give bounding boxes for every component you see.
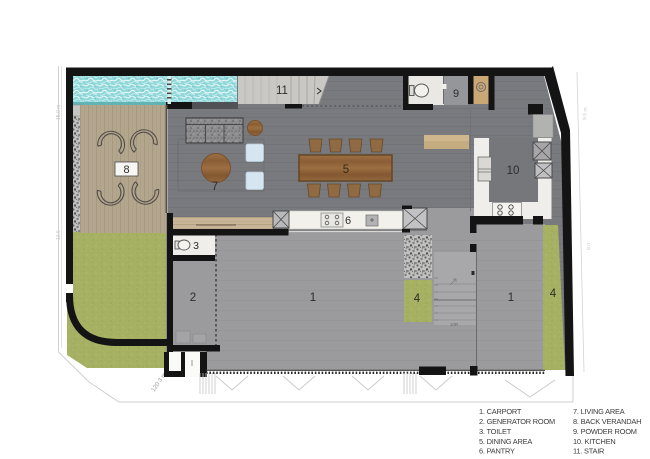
svg-text:1: 1	[310, 292, 316, 304]
svg-text:10: 10	[507, 165, 520, 177]
svg-text:9. POWDER ROOM: 9. POWDER ROOM	[573, 427, 637, 436]
svg-text:4: 4	[414, 293, 421, 305]
svg-text:2: 2	[190, 292, 196, 304]
svg-text:1: 1	[508, 292, 514, 304]
svg-text:3: 3	[193, 240, 199, 252]
svg-text:2. GENERATOR ROOM: 2. GENERATOR ROOM	[479, 417, 555, 426]
svg-text:12.5: 12.5	[56, 230, 62, 240]
svg-text:7: 7	[212, 181, 218, 193]
svg-text:10. KITCHEN: 10. KITCHEN	[573, 437, 616, 446]
svg-text:8. BACK VERANDAH: 8. BACK VERANDAH	[573, 417, 641, 426]
svg-text:10R: 10R	[450, 322, 459, 327]
svg-text:6. PANTRY: 6. PANTRY	[479, 447, 515, 456]
svg-text:7. LIVING AREA: 7. LIVING AREA	[573, 407, 625, 416]
svg-text:5. DINING AREA: 5. DINING AREA	[479, 437, 532, 446]
svg-text:11. STAIR: 11. STAIR	[573, 447, 604, 456]
svg-text:6: 6	[345, 215, 351, 227]
svg-text:1. CARPORT: 1. CARPORT	[479, 407, 522, 416]
svg-text:11: 11	[276, 85, 288, 97]
svg-text:9: 9	[453, 88, 459, 100]
svg-text:4: 4	[550, 288, 557, 300]
svg-text:5: 5	[343, 164, 349, 176]
svg-text:3. TOILET: 3. TOILET	[479, 427, 512, 436]
svg-text:8.0: 8.0	[586, 243, 592, 251]
svg-text:9.5 m: 9.5 m	[582, 107, 589, 120]
svg-text:8: 8	[123, 164, 129, 176]
svg-text:15.0 m: 15.0 m	[56, 105, 62, 120]
